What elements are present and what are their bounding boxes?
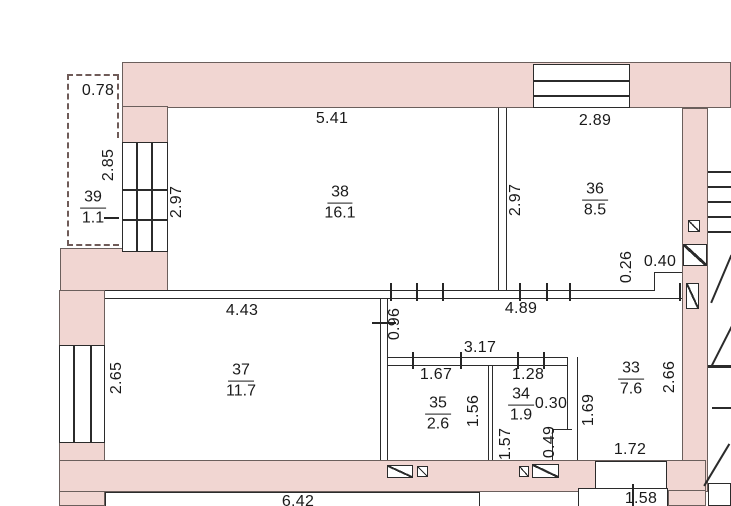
window-rail [534, 80, 629, 82]
window-room-36 [533, 64, 630, 108]
stair-step [708, 171, 731, 173]
dimension-label: 3.17 [464, 339, 496, 357]
room-label-38: 3816.1 [324, 184, 355, 223]
dimension-label: 6.42 [282, 493, 314, 506]
room-area: 7.6 [618, 380, 644, 399]
partition-35-34 [488, 366, 493, 460]
vent-duct [686, 283, 699, 309]
dimension-label: 2.65 [108, 362, 126, 394]
dimension-label: 4.43 [226, 302, 258, 320]
vent-duct [519, 466, 529, 477]
dimension-tick [390, 283, 392, 301]
dimension-tick [412, 352, 414, 369]
room-label-33: 337.6 [618, 360, 644, 399]
room-area: 1.9 [508, 406, 534, 425]
room-number: 35 [425, 395, 451, 415]
door-opening-bottom [595, 461, 667, 489]
stair-step [708, 231, 731, 233]
dimension-label: 1.57 [497, 428, 515, 460]
dimension-label: 1.69 [580, 394, 598, 426]
room-area: 2.6 [425, 415, 451, 434]
room-number: 36 [582, 181, 608, 201]
stair-step [708, 186, 731, 188]
window-mullion [136, 143, 138, 251]
dimension-label: 5.41 [316, 110, 348, 128]
dimension-label: 2.97 [507, 184, 525, 216]
stair-step [708, 201, 731, 203]
window-mullion [151, 143, 153, 251]
room-number: 33 [618, 360, 644, 380]
dimension-tick [569, 283, 571, 301]
dimension-label: 2.89 [579, 112, 611, 130]
wall-38-corridor [105, 290, 682, 299]
window-rail [123, 219, 167, 221]
vent-duct [688, 220, 700, 232]
room-label-34: 341.9 [508, 386, 534, 425]
dimension-label: 0.96 [386, 308, 404, 340]
dimension-label: 1.56 [465, 395, 483, 427]
vent-duct [532, 464, 559, 478]
wall-corridor-3534 [388, 357, 578, 366]
window-mullion [90, 346, 92, 442]
room-label-36: 368.5 [582, 181, 608, 220]
dimension-label: 2.85 [100, 149, 118, 181]
dimension-tick [519, 283, 521, 301]
dimension-label: 4.89 [505, 300, 537, 318]
vent-duct [683, 244, 707, 266]
dimension-label: 0.49 [541, 426, 559, 458]
dimension-label: 0.30 [535, 395, 567, 413]
wall-bottom-right-chunk [668, 490, 706, 506]
wall-top-left-corner [122, 106, 168, 144]
wall-left-jog [60, 248, 168, 292]
wall-left-upper [59, 290, 105, 348]
dimension-label: 0.40 [644, 253, 676, 271]
dimension-tick [442, 283, 444, 301]
dimension-tick [416, 283, 418, 301]
room-area: 16.1 [324, 204, 355, 223]
dimension-label: 2.97 [168, 186, 186, 218]
stair-step [712, 407, 731, 409]
dimension-label: 1.72 [614, 441, 646, 459]
window-room-37 [59, 345, 105, 443]
dimension-label: 0.78 [82, 82, 114, 100]
dimension-label: 0.26 [618, 251, 636, 283]
duct-room-36 [654, 272, 682, 291]
room-area: 8.5 [582, 201, 608, 220]
window-mullion [73, 346, 75, 442]
room-number: 34 [508, 386, 534, 406]
dimension-tick [460, 352, 462, 369]
dimension-label: 1.28 [512, 366, 544, 384]
room-area: 11.7 [226, 382, 256, 401]
window-rail [123, 189, 167, 191]
wall-top [122, 62, 731, 108]
dimension-label: 1.58 [625, 490, 657, 506]
dimension-tick [546, 283, 548, 301]
dimension-tick [679, 283, 681, 301]
room-number: 39 [80, 189, 106, 209]
stair-landing-box [708, 483, 731, 506]
vent-duct [417, 466, 428, 477]
label-leader-39 [104, 217, 119, 219]
dimension-label: 1.67 [420, 366, 452, 384]
floor-plan: 0.782.852.975.412.892.970.260.404.434.89… [0, 0, 731, 506]
room-label-39: 391.1 [80, 189, 106, 228]
stair-step [708, 216, 731, 218]
room-label-37: 3711.7 [226, 362, 256, 401]
stair-flight-line [710, 255, 731, 304]
partition-38-36 [498, 108, 507, 293]
balcony-outline-right [117, 74, 119, 138]
room-label-35: 352.6 [425, 395, 451, 434]
window-rail [534, 95, 629, 97]
vent-duct [387, 465, 413, 478]
balcony-window-unit [122, 142, 168, 252]
room-area: 1.1 [80, 209, 106, 228]
room-number: 38 [327, 184, 353, 204]
stair-flight-line [710, 325, 731, 367]
dimension-label: 2.66 [661, 361, 679, 393]
room-number: 37 [228, 362, 254, 382]
